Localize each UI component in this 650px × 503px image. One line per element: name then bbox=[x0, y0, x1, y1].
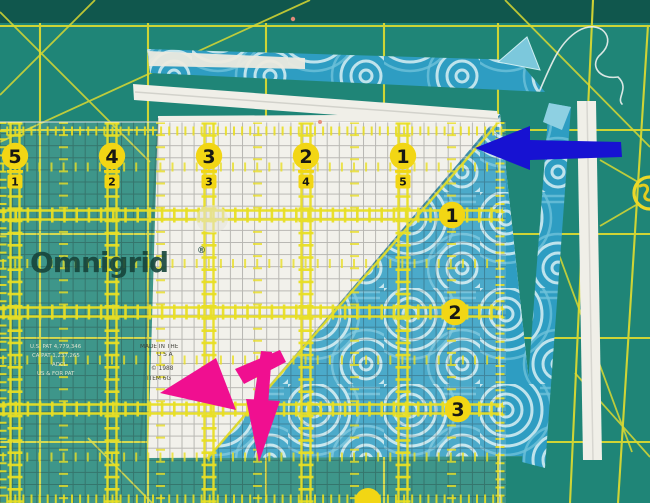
origin-line: ITEM 6G bbox=[147, 376, 171, 382]
dust-blob bbox=[196, 205, 228, 233]
minor-digit: 3 bbox=[205, 176, 213, 189]
major-digit: 5 bbox=[8, 146, 21, 168]
minor-digit: 4 bbox=[302, 176, 310, 189]
right-digit-3: 3 bbox=[451, 399, 464, 421]
origin-line: MADE IN THE bbox=[140, 344, 179, 350]
major-digit: 3 bbox=[202, 146, 215, 168]
patent-line: US & FOR PAT bbox=[37, 371, 75, 377]
quilting-photo: 5 1 4 2 3 3 2 4 1 5 bbox=[0, 0, 650, 503]
right-digit-1: 1 bbox=[445, 205, 458, 227]
mat-top-band bbox=[0, 0, 650, 23]
minor-digit: 5 bbox=[399, 176, 407, 189]
minor-digit: 1 bbox=[11, 176, 19, 189]
patent-line: CA PAT 1,237,265 bbox=[32, 353, 80, 359]
lint-speck bbox=[318, 120, 322, 124]
ruler-brand: Omnigrid bbox=[30, 246, 168, 279]
major-digit: 2 bbox=[299, 146, 312, 168]
lint-speck bbox=[291, 17, 295, 21]
patent-line: U.S. PAT 4,779,346 bbox=[30, 344, 82, 350]
origin-line: U S A bbox=[157, 352, 173, 358]
origin-line: © 1988 bbox=[151, 365, 174, 372]
minor-digit: 2 bbox=[108, 176, 116, 189]
major-digit: 4 bbox=[105, 146, 118, 168]
right-digit-2: 2 bbox=[448, 302, 461, 324]
patent-line: ADCL bbox=[52, 362, 67, 368]
registered-mark: ® bbox=[197, 246, 206, 256]
photo-canvas: 5 1 4 2 3 3 2 4 1 5 bbox=[0, 0, 650, 503]
omnigrid-ruler: 5 1 4 2 3 3 2 4 1 5 bbox=[0, 121, 506, 503]
major-digit: 1 bbox=[396, 146, 409, 168]
